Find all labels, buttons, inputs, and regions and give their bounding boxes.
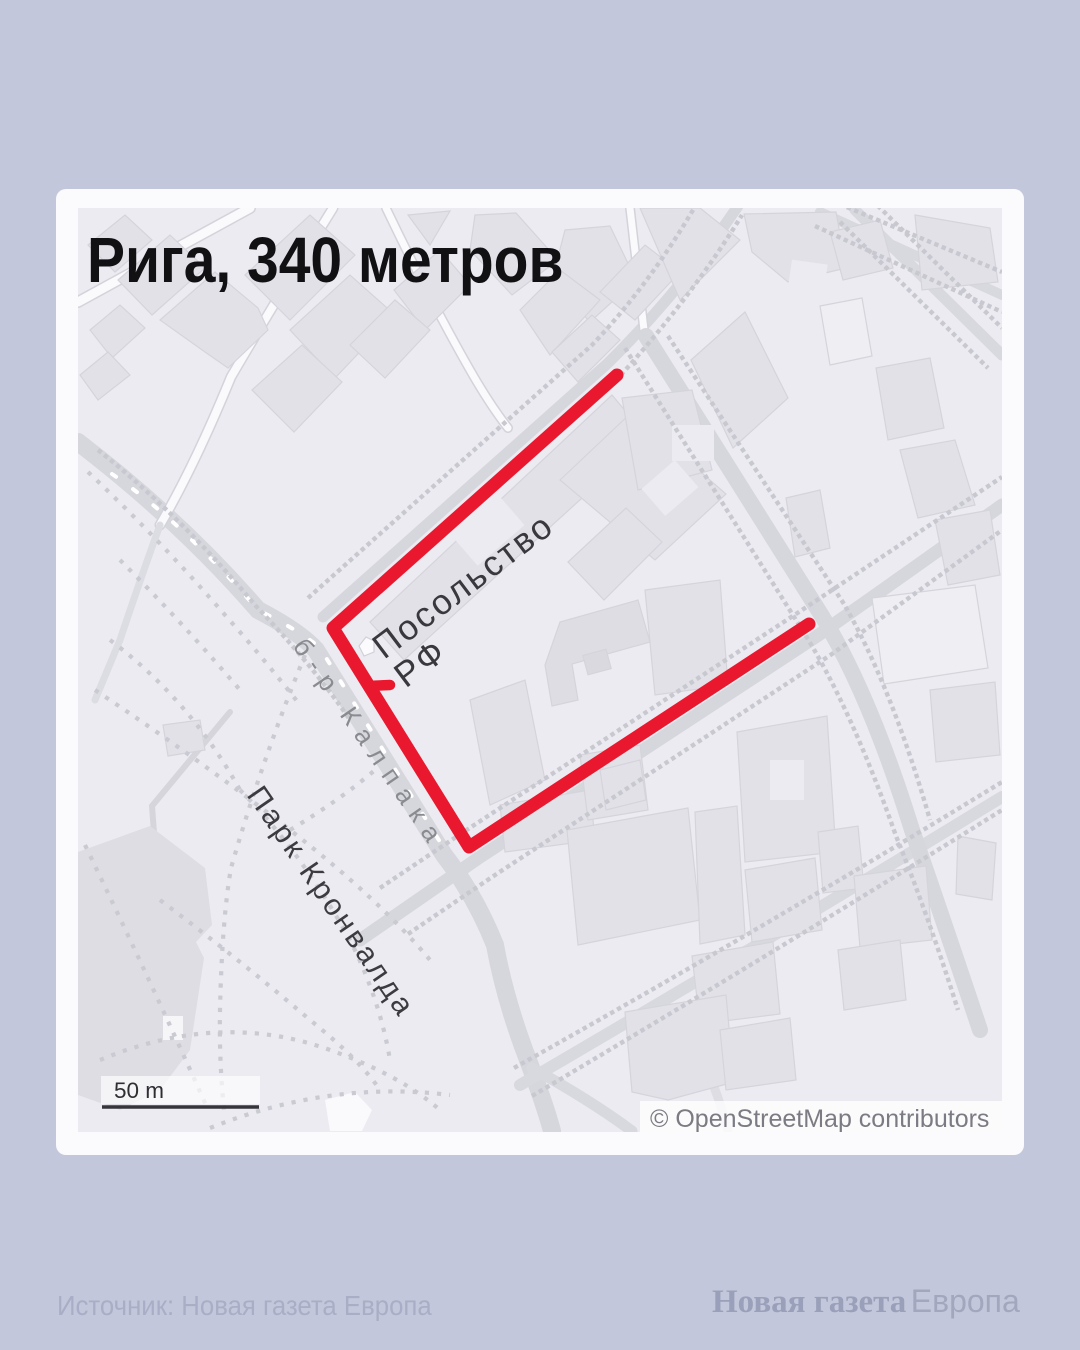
svg-text:© OpenStreetMap contributors: © OpenStreetMap contributors [650, 1105, 989, 1132]
svg-text:50 m: 50 m [114, 1078, 164, 1103]
